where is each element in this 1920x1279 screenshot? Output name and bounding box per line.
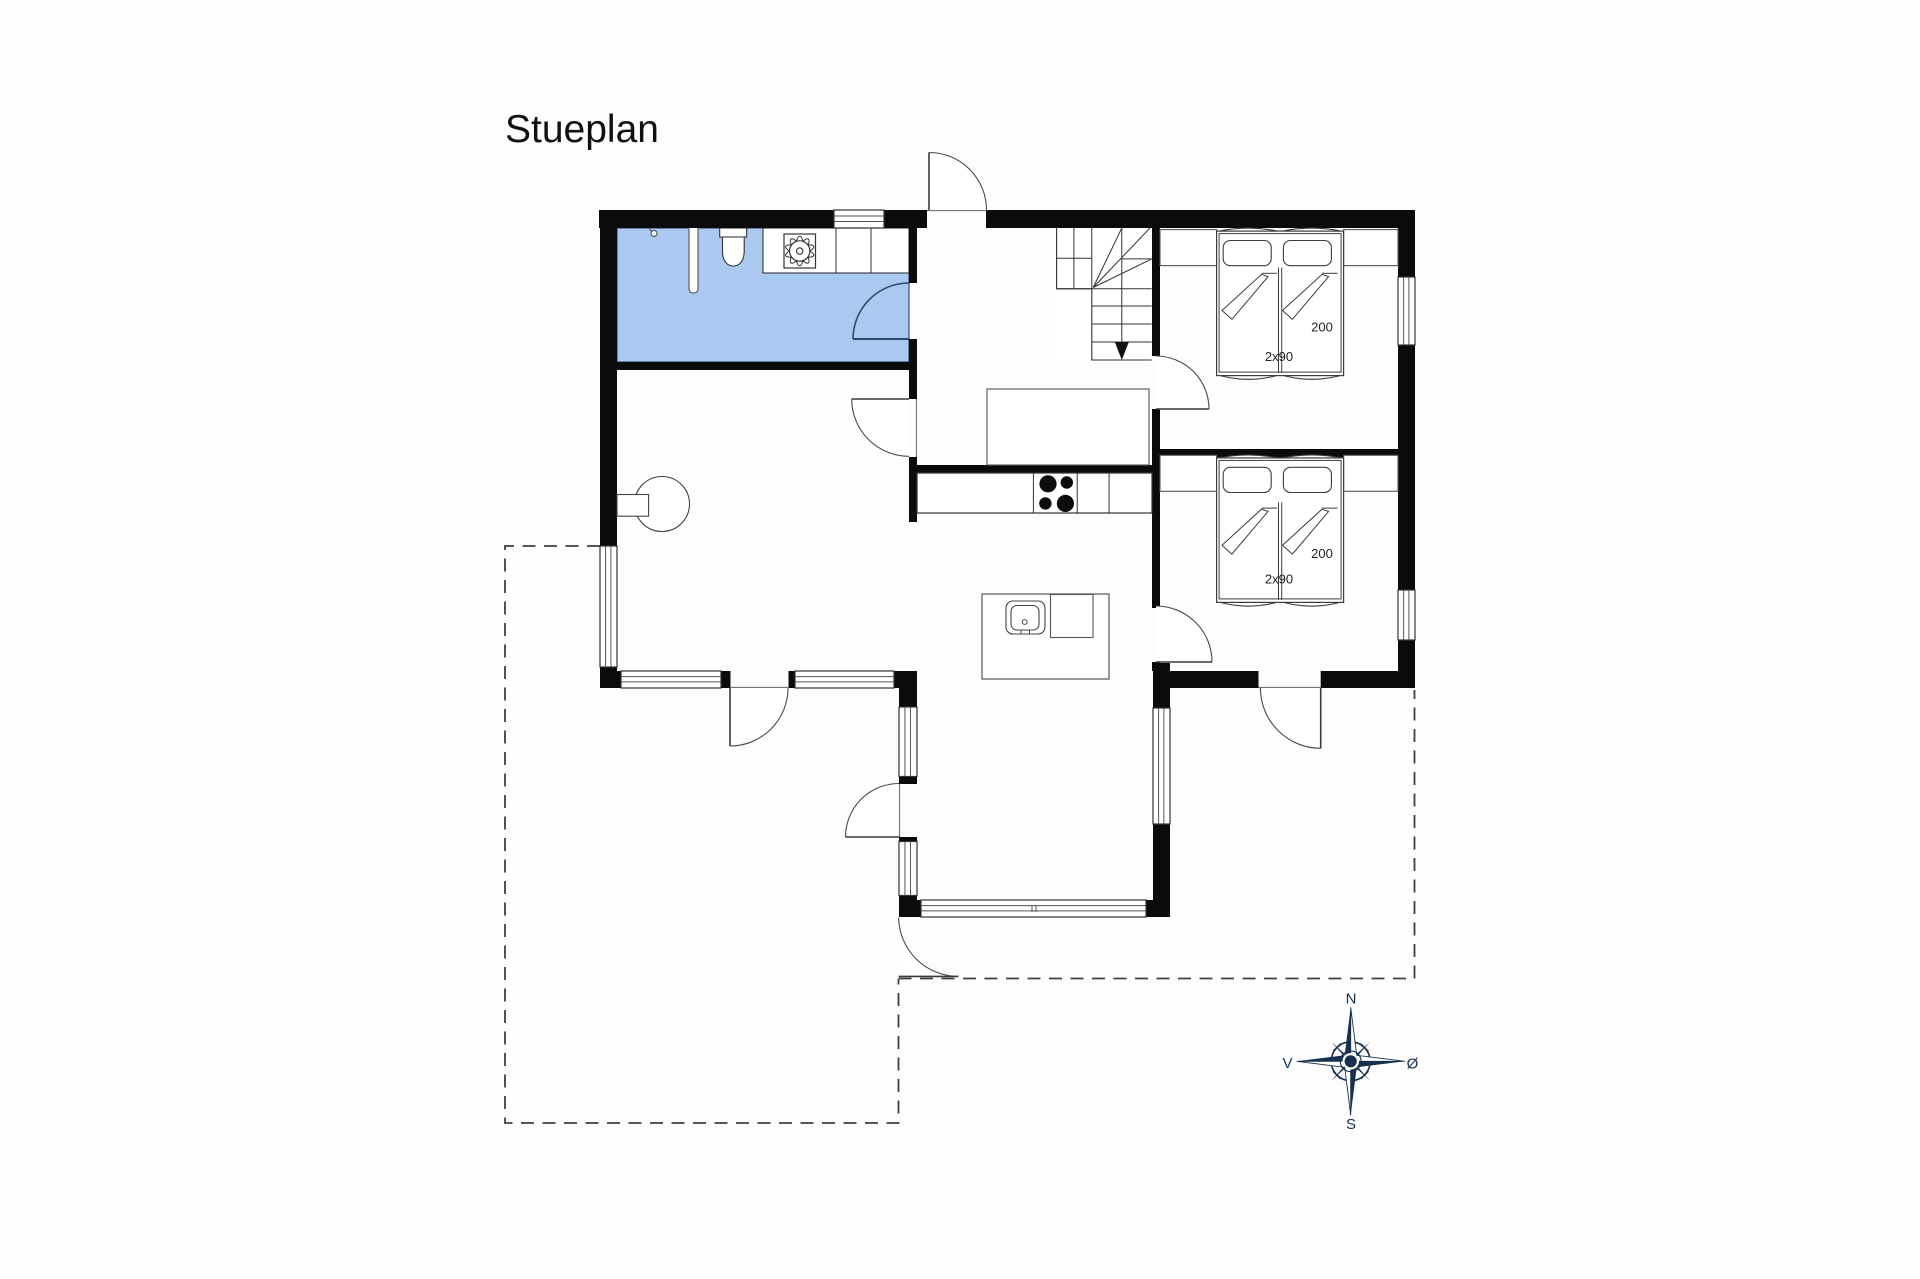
- svg-text:N: N: [1346, 991, 1357, 1008]
- svg-text:2x90: 2x90: [1265, 572, 1293, 587]
- svg-text:2x90: 2x90: [1265, 349, 1293, 364]
- svg-text:200: 200: [1311, 320, 1333, 335]
- svg-text:Stueplan: Stueplan: [505, 108, 659, 151]
- svg-text:200: 200: [1311, 546, 1333, 561]
- svg-text:S: S: [1346, 1116, 1356, 1133]
- svg-text:V: V: [1282, 1055, 1292, 1072]
- svg-text:Ø: Ø: [1407, 1056, 1419, 1073]
